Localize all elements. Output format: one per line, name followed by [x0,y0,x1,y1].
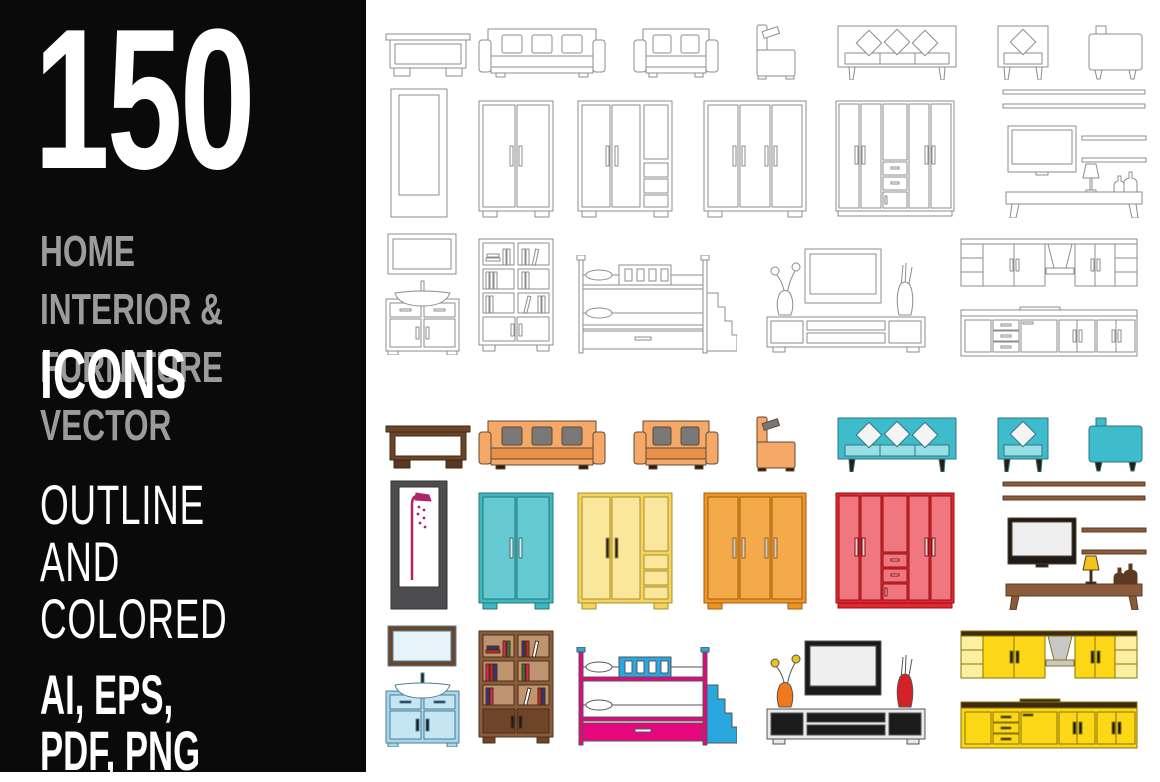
mirror-and-sink-vanity-colored-icon [385,625,460,752]
media-wall-shelves-outline-icon [1000,88,1148,223]
wardrobe-two-door-colored-icon [478,492,554,615]
loveseat-diamond-pillow-outline-icon [995,25,1051,85]
armchair-side-colored-icon [753,416,799,477]
shower-cabin-outline-icon [390,88,448,223]
wardrobe-three-door-outline-icon [703,100,807,223]
bookshelf-colored-icon [478,630,554,750]
kitchen-cabinets-outline-icon [960,238,1138,365]
kitchen-cabinets-colored-icon [960,630,1138,757]
sofa-two-seat-colored-icon [633,420,719,475]
mirror-and-sink-vanity-outline-icon [385,233,460,360]
poster: { "banner": { "count": "150", "line1": "… [0,0,1160,772]
wardrobe-two-door-outline-icon [478,100,554,223]
sofa-two-seat-outline-icon [633,28,719,83]
shower-cabin-colored-icon [390,480,448,615]
sofa-diamond-pillows-colored-icon [833,417,961,477]
wardrobe-with-drawers-outline-icon [577,100,673,223]
icon-field [0,0,1160,772]
bunk-bed-with-stairs-colored-icon [575,647,737,752]
media-wall-shelves-colored-icon [1000,480,1148,615]
wardrobe-with-drawers-colored-icon [577,492,673,615]
bookshelf-outline-icon [478,238,554,358]
coffee-table-outline-icon [385,33,471,83]
sofa-diamond-pillows-outline-icon [833,25,961,85]
wardrobe-three-door-colored-icon [703,492,807,615]
bunk-bed-with-stairs-outline-icon [575,255,737,360]
wardrobe-five-door-outline-icon [835,100,955,223]
tv-stand-with-vases-outline-icon [765,243,927,360]
club-chair-outline-icon [1088,25,1143,85]
sofa-three-seat-outline-icon [478,28,606,83]
wardrobe-five-door-colored-icon [835,492,955,615]
tv-stand-with-vases-colored-icon [765,635,927,752]
coffee-table-colored-icon [385,425,471,475]
loveseat-diamond-pillow-colored-icon [995,417,1051,477]
armchair-side-outline-icon [753,24,799,85]
sofa-three-seat-colored-icon [478,420,606,475]
club-chair-colored-icon [1088,417,1143,477]
